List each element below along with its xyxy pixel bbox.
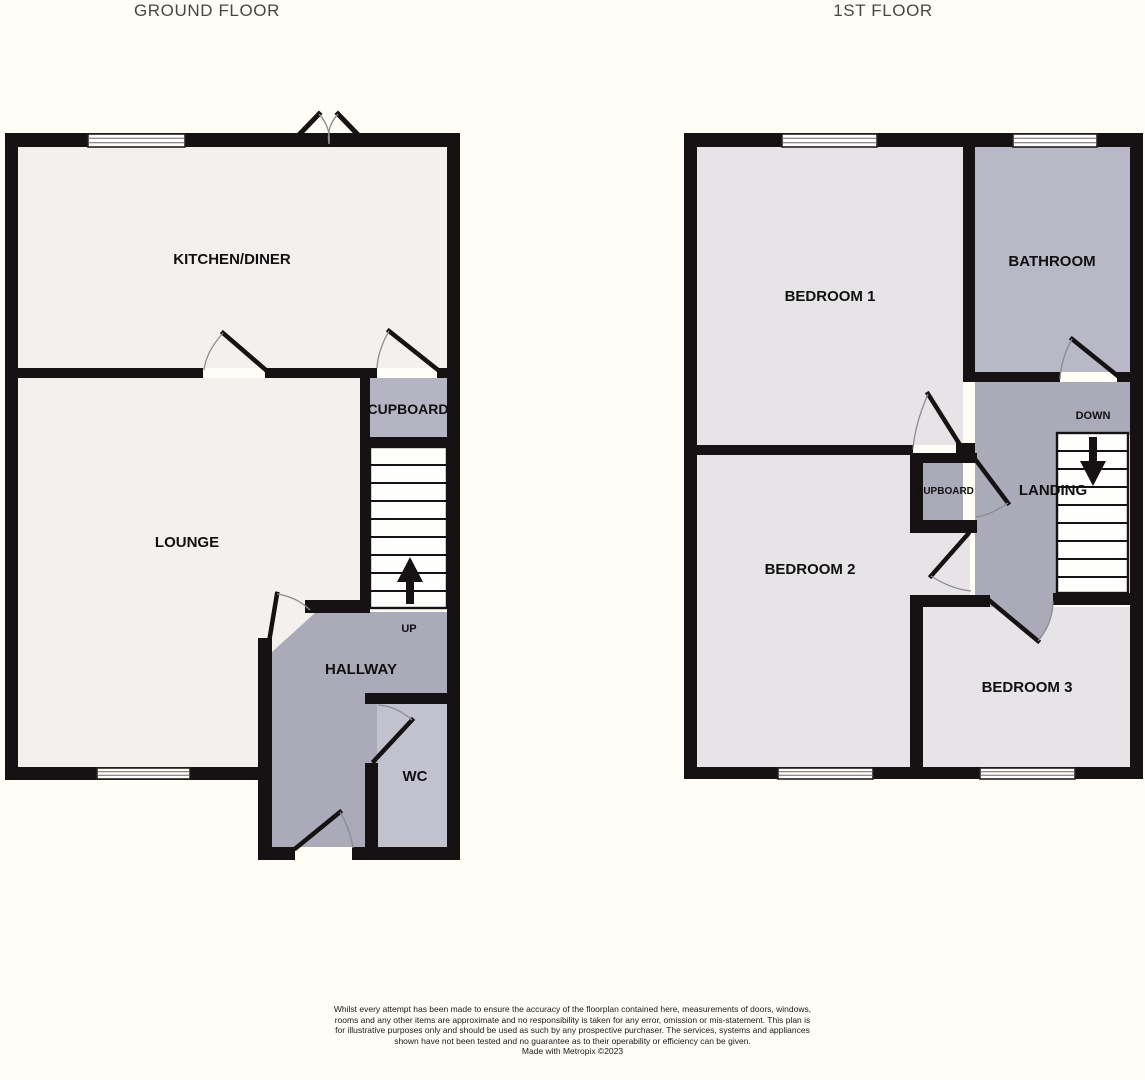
first-floor-title: 1ST FLOOR bbox=[833, 1, 933, 20]
floorplan-canvas: GROUND FLOOR KITCHEN/DINER LOUNGE CUPBOA… bbox=[0, 0, 1145, 1080]
staircase-ground bbox=[370, 447, 447, 608]
label-lounge: LOUNGE bbox=[155, 534, 219, 551]
label-cupboard-1f: CUPBOARD bbox=[916, 486, 974, 497]
disclaimer-text: Whilst every attempt has been made to en… bbox=[333, 1004, 813, 1046]
footer-disclaimer: Whilst every attempt has been made to en… bbox=[333, 1004, 813, 1057]
label-kitchen-diner: KITCHEN/DINER bbox=[173, 251, 291, 268]
label-wc: WC bbox=[403, 768, 428, 785]
window bbox=[782, 134, 877, 147]
label-hallway: HALLWAY bbox=[325, 661, 397, 678]
label-stairs-up: UP bbox=[401, 623, 416, 635]
staircase-first bbox=[1057, 433, 1128, 593]
label-bedroom2: BEDROOM 2 bbox=[765, 561, 856, 578]
window bbox=[980, 768, 1075, 779]
label-bedroom1: BEDROOM 1 bbox=[785, 288, 876, 305]
label-cupboard-gf: CUPBOARD bbox=[368, 401, 449, 417]
window bbox=[97, 768, 190, 779]
window bbox=[1013, 134, 1097, 147]
window bbox=[778, 768, 873, 779]
window bbox=[88, 134, 185, 147]
credit-text: Made with Metropix ©2023 bbox=[333, 1046, 813, 1057]
label-stairs-down: DOWN bbox=[1076, 410, 1111, 422]
label-landing: LANDING bbox=[1019, 482, 1087, 499]
ground-floor-title: GROUND FLOOR bbox=[134, 1, 280, 20]
floorplan-page: GROUND FLOOR KITCHEN/DINER LOUNGE CUPBOA… bbox=[0, 0, 1145, 1080]
label-bedroom3: BEDROOM 3 bbox=[982, 679, 1073, 696]
label-bathroom: BATHROOM bbox=[1008, 253, 1095, 270]
